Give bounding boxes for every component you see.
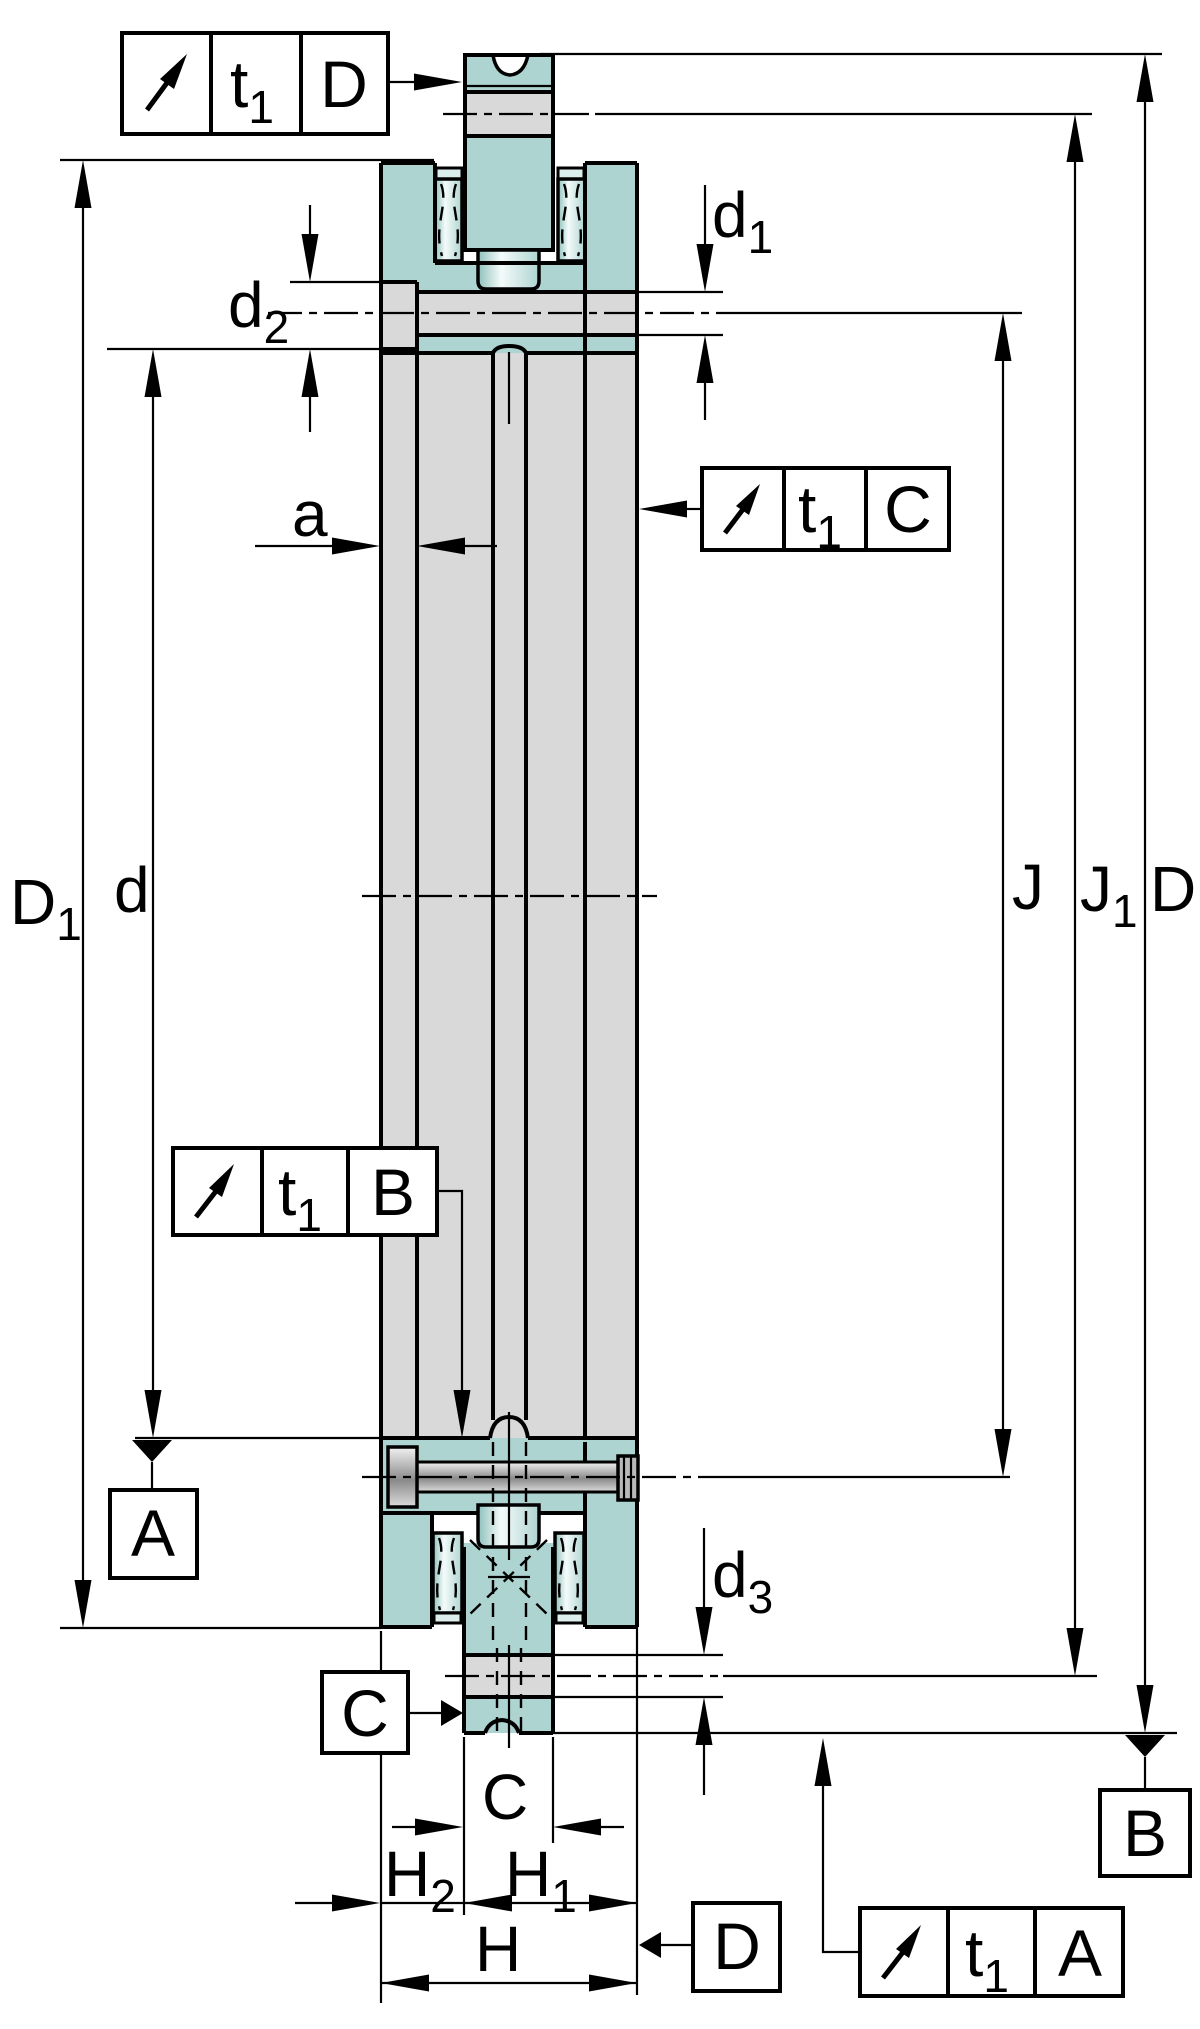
dimension-D-outer: D xyxy=(1137,54,1197,1733)
top-counterbore-step xyxy=(381,282,417,349)
label-D1: D1 xyxy=(10,866,82,950)
datum-C: C xyxy=(322,1672,463,1753)
dimension-D1: D1 xyxy=(10,160,92,1628)
cage-tongue-top xyxy=(478,250,539,289)
datum-B-letter: B xyxy=(1123,1796,1167,1870)
datum-D: D xyxy=(639,1903,780,1991)
axial-roller xyxy=(555,1533,584,1613)
tolerance-datum-ref: A xyxy=(1058,1916,1102,1990)
dimension-H2-H1: H2 H1 xyxy=(295,1838,637,1922)
bottom-left-block xyxy=(381,1513,432,1627)
technical-drawing-page: D1 d J J1 D d1 d2 xyxy=(0,0,1200,2029)
datum-A-letter: A xyxy=(131,1496,175,1570)
label-C-dim: C xyxy=(482,1761,528,1833)
datum-triangle xyxy=(441,1700,463,1726)
tolerance-frame-top: t1 D xyxy=(122,33,462,134)
label-J1: J1 xyxy=(1080,853,1138,937)
roller-cap xyxy=(556,1613,583,1623)
dimension-d: d xyxy=(114,349,162,1438)
top-shaft-and-rollers xyxy=(435,55,585,289)
datum-triangle xyxy=(1125,1735,1165,1757)
axial-roller xyxy=(435,179,462,261)
label-d3: d3 xyxy=(712,1539,773,1623)
dimension-J: J xyxy=(995,313,1045,1477)
bearing-section-drawing: D1 d J J1 D d1 d2 xyxy=(0,0,1200,2029)
label-a: a xyxy=(292,478,328,550)
dimension-C: C xyxy=(392,1761,624,1836)
label-d1: d1 xyxy=(712,179,773,263)
tolerance-datum-ref: C xyxy=(884,472,932,546)
dimension-d1: d1 xyxy=(697,179,774,420)
datum-D-letter: D xyxy=(713,1909,761,1983)
label-H: H xyxy=(475,1913,521,1985)
dimension-d3: d3 xyxy=(696,1528,774,1795)
axial-roller xyxy=(558,179,585,261)
dimension-H: H xyxy=(381,1913,637,1992)
label-H1: H1 xyxy=(505,1838,577,1922)
label-d2: d2 xyxy=(228,269,289,353)
axial-roller xyxy=(433,1533,462,1613)
datum-B: B xyxy=(1100,1735,1190,1876)
label-d: d xyxy=(114,854,150,926)
datum-triangle xyxy=(132,1440,172,1462)
top-spigot xyxy=(465,55,553,250)
datum-C-letter: C xyxy=(341,1676,389,1750)
tolerance-frame-right: t1 C xyxy=(639,468,949,558)
tolerance-datum-ref: B xyxy=(371,1155,415,1229)
datum-A: A xyxy=(110,1440,197,1578)
label-J: J xyxy=(1012,851,1044,923)
tolerance-frame-bottom: t1 A xyxy=(815,1738,1124,2002)
tolerance-datum-ref: D xyxy=(320,47,368,121)
datum-triangle xyxy=(639,1932,661,1958)
dimension-J1: J1 xyxy=(1067,114,1138,1676)
label-D-outer: D xyxy=(1150,853,1196,925)
roller-cap xyxy=(434,1613,461,1623)
label-H2: H2 xyxy=(384,1838,456,1922)
dimension-d2: d2 xyxy=(228,205,319,432)
